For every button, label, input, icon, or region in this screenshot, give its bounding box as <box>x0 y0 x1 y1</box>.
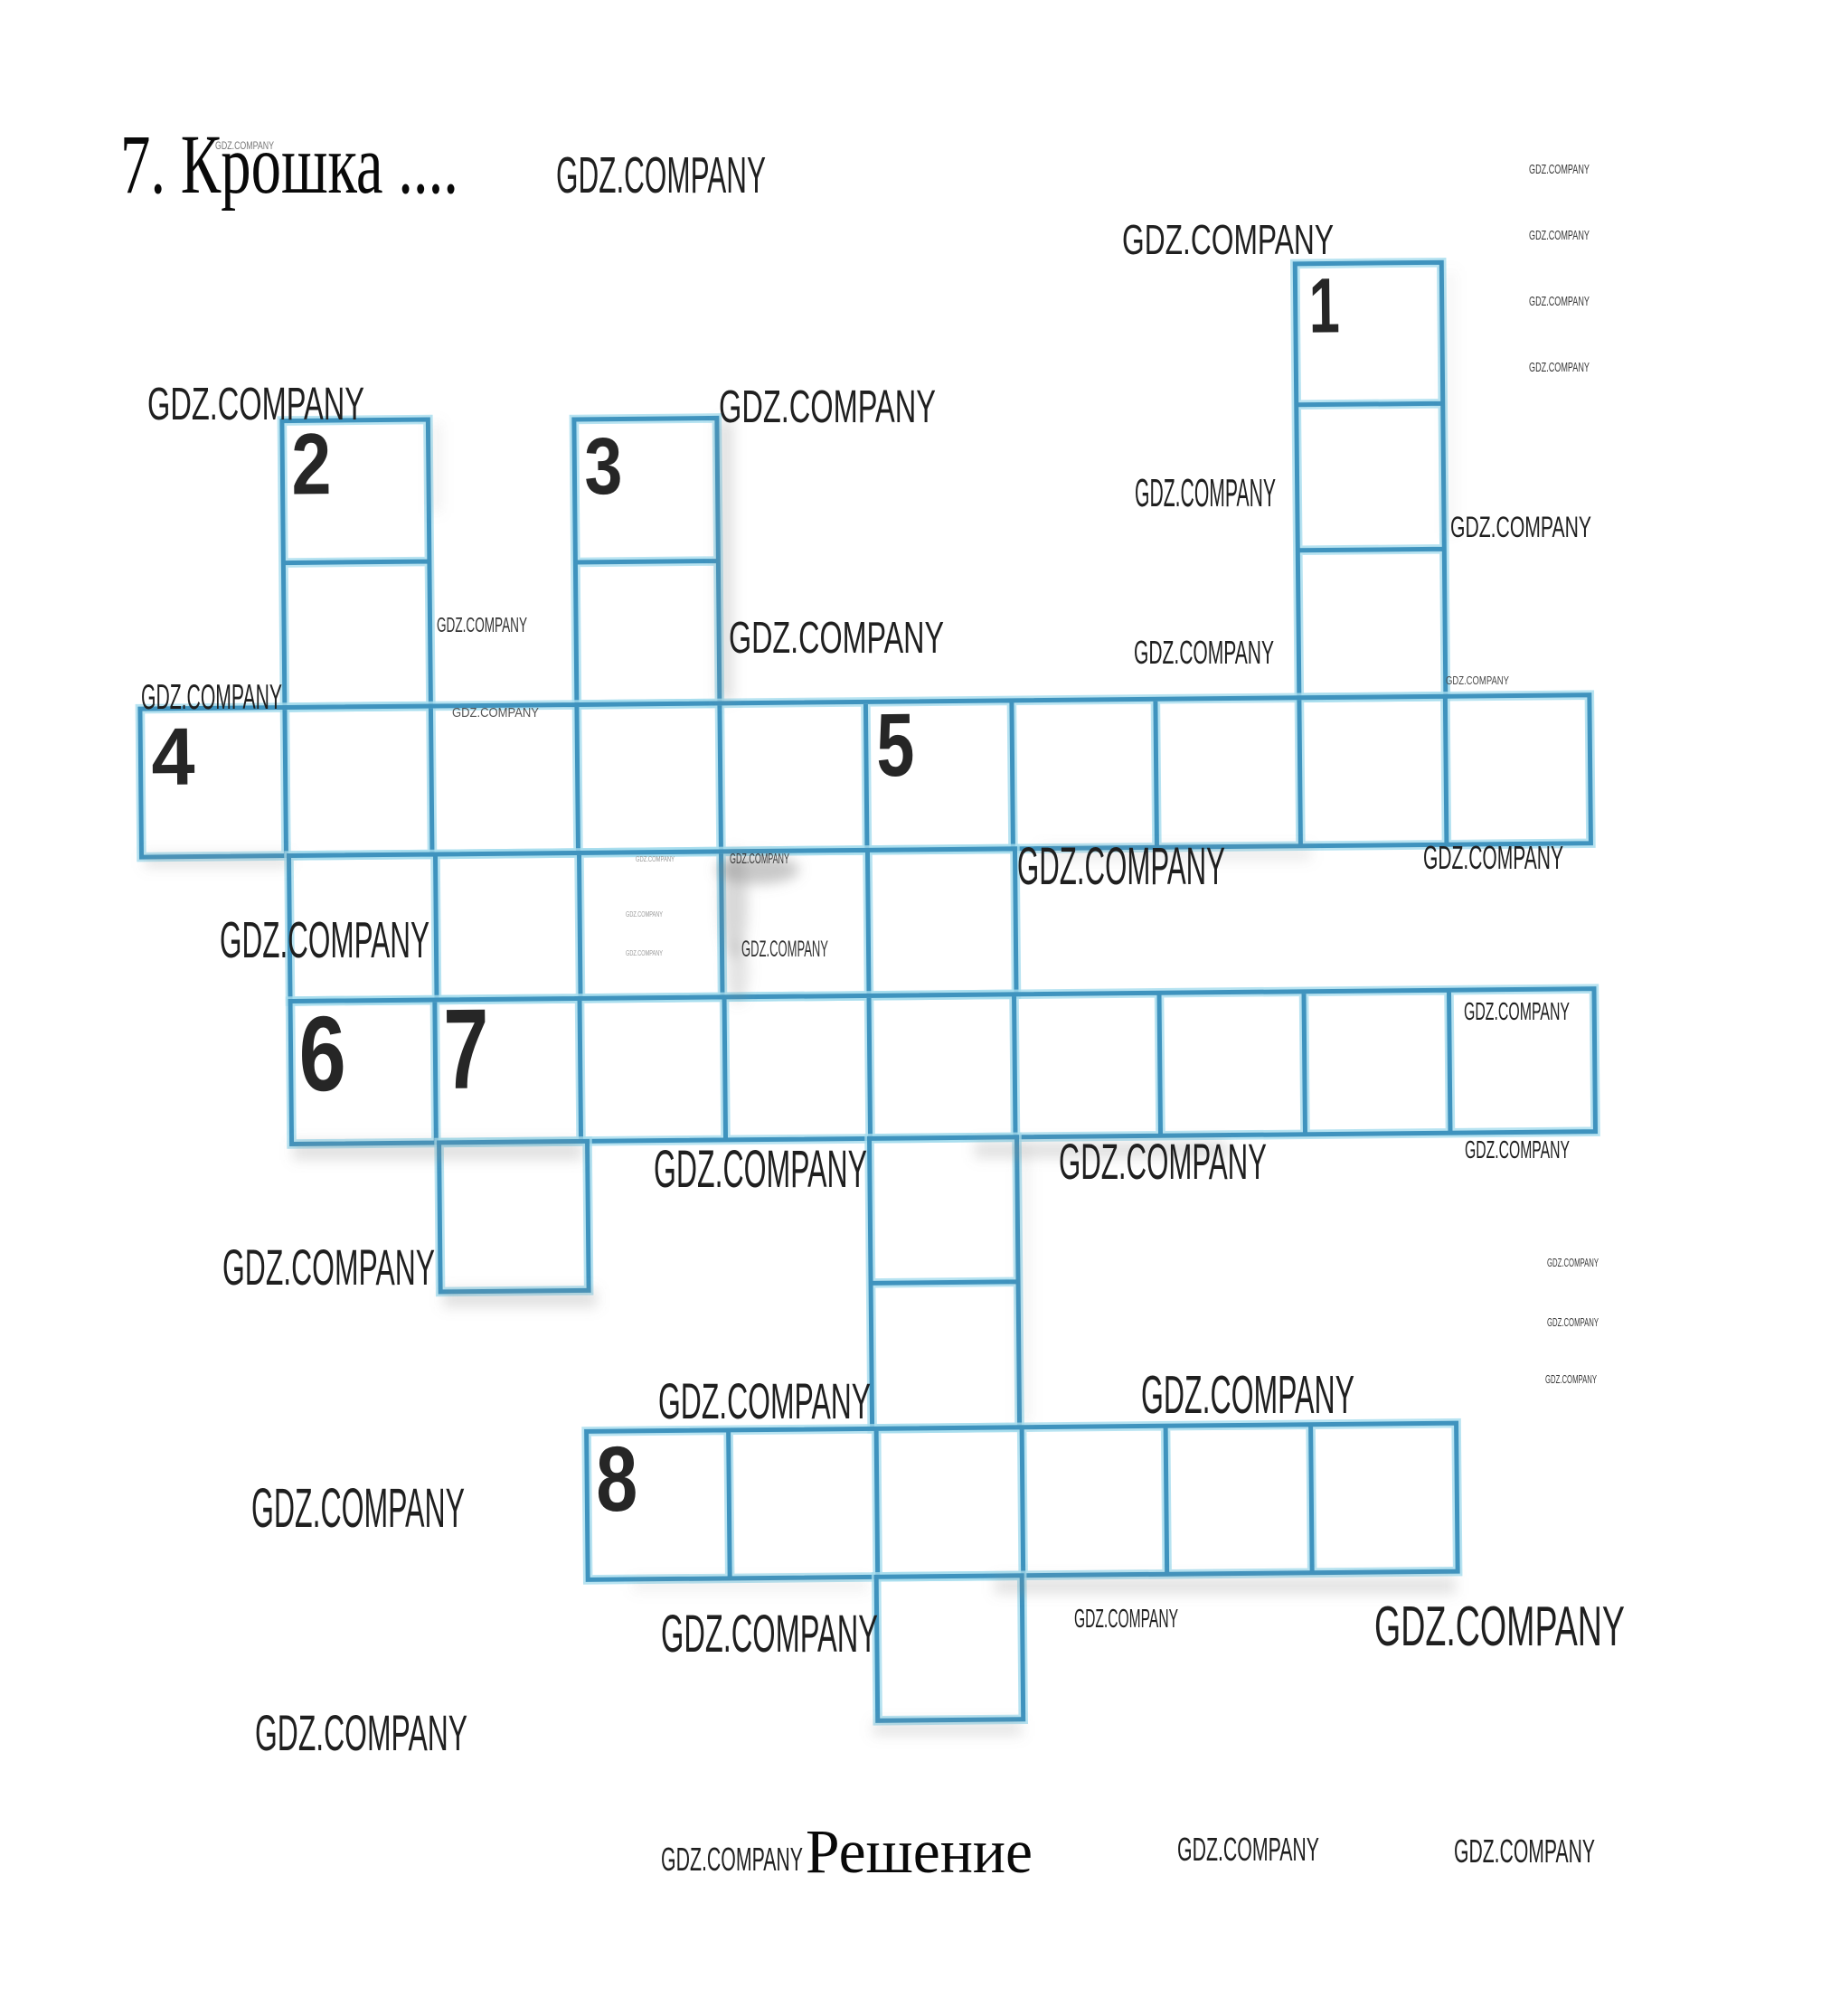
svg-text:GDZ.COMPANY: GDZ.COMPANY <box>626 909 663 919</box>
svg-text:GDZ.COMPANY: GDZ.COMPANY <box>437 613 527 636</box>
svg-text:GDZ.COMPANY: GDZ.COMPANY <box>220 912 429 969</box>
svg-text:GDZ.COMPANY: GDZ.COMPANY <box>1547 1256 1599 1269</box>
svg-text:GDZ.COMPANY: GDZ.COMPANY <box>654 1140 867 1199</box>
svg-text:GDZ.COMPANY: GDZ.COMPANY <box>215 140 274 152</box>
svg-text:GDZ.COMPANY: GDZ.COMPANY <box>556 147 766 204</box>
svg-text:GDZ.COMPANY: GDZ.COMPANY <box>1059 1134 1267 1190</box>
svg-text:GDZ.COMPANY: GDZ.COMPANY <box>1547 1315 1599 1329</box>
svg-text:GDZ.COMPANY: GDZ.COMPANY <box>1454 1832 1595 1870</box>
svg-text:GDZ.COMPANY: GDZ.COMPANY <box>661 1841 803 1878</box>
svg-text:GDZ.COMPANY: GDZ.COMPANY <box>1464 997 1570 1025</box>
svg-text:GDZ.COMPANY: GDZ.COMPANY <box>1529 229 1590 243</box>
svg-text:Решение: Решение <box>806 1817 1033 1886</box>
svg-text:3: 3 <box>584 420 623 511</box>
svg-text:GDZ.COMPANY: GDZ.COMPANY <box>1135 472 1276 515</box>
svg-text:GDZ.COMPANY: GDZ.COMPANY <box>1423 839 1563 876</box>
svg-text:GDZ.COMPANY: GDZ.COMPANY <box>1465 1135 1570 1163</box>
svg-text:GDZ.COMPANY: GDZ.COMPANY <box>1017 837 1225 896</box>
svg-text:GDZ.COMPANY: GDZ.COMPANY <box>661 1605 878 1663</box>
svg-text:GDZ.COMPANY: GDZ.COMPANY <box>1141 1364 1354 1425</box>
svg-text:GDZ.COMPANY: GDZ.COMPANY <box>251 1477 465 1539</box>
svg-text:GDZ.COMPANY: GDZ.COMPANY <box>741 937 828 962</box>
svg-text:GDZ.COMPANY: GDZ.COMPANY <box>1446 674 1509 687</box>
svg-text:GDZ.COMPANY: GDZ.COMPANY <box>1450 511 1591 543</box>
svg-text:GDZ.COMPANY: GDZ.COMPANY <box>729 613 944 663</box>
svg-text:GDZ.COMPANY: GDZ.COMPANY <box>141 678 282 717</box>
svg-text:GDZ.COMPANY: GDZ.COMPANY <box>1374 1595 1625 1658</box>
svg-text:GDZ.COMPANY: GDZ.COMPANY <box>1134 634 1274 671</box>
svg-text:GDZ.COMPANY: GDZ.COMPANY <box>658 1373 871 1429</box>
svg-text:2: 2 <box>291 416 332 513</box>
svg-text:7. Крошка ....: 7. Крошка .... <box>120 118 458 212</box>
svg-text:GDZ.COMPANY: GDZ.COMPANY <box>1545 1372 1597 1386</box>
svg-text:GDZ.COMPANY: GDZ.COMPANY <box>1529 295 1590 309</box>
svg-text:4: 4 <box>151 712 195 803</box>
svg-text:GDZ.COMPANY: GDZ.COMPANY <box>147 378 364 429</box>
svg-text:GDZ.COMPANY: GDZ.COMPANY <box>730 852 789 867</box>
svg-text:1: 1 <box>1308 262 1340 349</box>
svg-text:GDZ.COMPANY: GDZ.COMPANY <box>626 948 663 957</box>
svg-text:GDZ.COMPANY: GDZ.COMPANY <box>636 854 675 863</box>
svg-text:GDZ.COMPANY: GDZ.COMPANY <box>222 1239 435 1295</box>
svg-text:GDZ.COMPANY: GDZ.COMPANY <box>1074 1605 1178 1634</box>
svg-text:5: 5 <box>876 694 915 795</box>
svg-text:GDZ.COMPANY: GDZ.COMPANY <box>1529 163 1590 177</box>
svg-text:6: 6 <box>298 994 346 1114</box>
svg-text:GDZ.COMPANY: GDZ.COMPANY <box>1529 361 1590 375</box>
svg-text:GDZ.COMPANY: GDZ.COMPANY <box>719 381 936 432</box>
svg-text:7: 7 <box>443 984 489 1112</box>
svg-text:GDZ.COMPANY: GDZ.COMPANY <box>1177 1831 1319 1868</box>
svg-text:GDZ.COMPANY: GDZ.COMPANY <box>1122 216 1334 263</box>
svg-text:8: 8 <box>596 1427 638 1531</box>
svg-text:GDZ.COMPANY: GDZ.COMPANY <box>255 1705 467 1761</box>
svg-text:GDZ.COMPANY: GDZ.COMPANY <box>452 706 539 721</box>
